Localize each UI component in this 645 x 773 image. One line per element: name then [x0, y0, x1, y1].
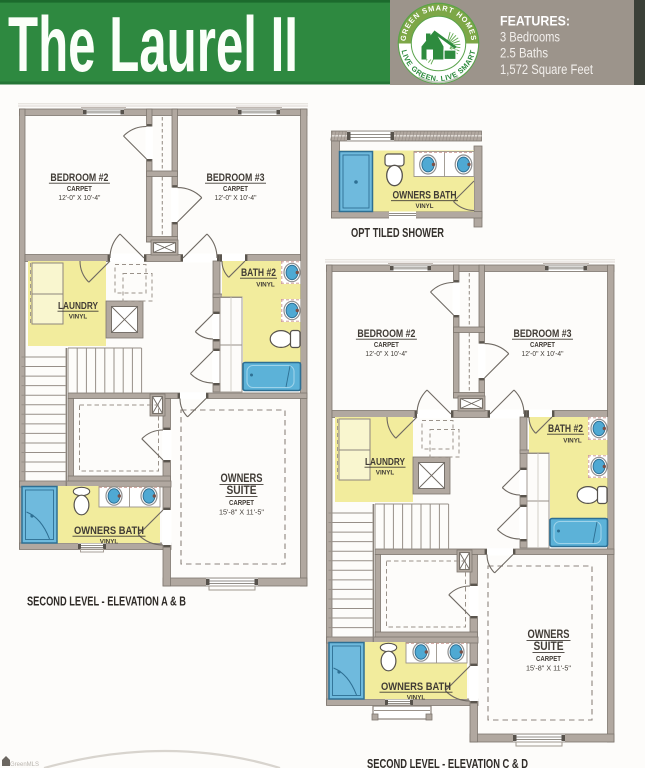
svg-text:1,572 Square Feet: 1,572 Square Feet	[500, 62, 593, 77]
svg-text:SECOND LEVEL - ELEVATION A & B: SECOND LEVEL - ELEVATION A & B	[27, 594, 186, 609]
svg-text:2.5 Baths: 2.5 Baths	[500, 46, 548, 61]
svg-text:SECOND LEVEL - ELEVATION C & D: SECOND LEVEL - ELEVATION C & D	[367, 756, 528, 768]
svg-text:OPT TILED SHOWER: OPT TILED SHOWER	[351, 226, 444, 240]
svg-text:GreenMLS: GreenMLS	[10, 762, 39, 768]
svg-text:OWNERS BATH: OWNERS BATH	[393, 190, 457, 202]
svg-text:The Laurel II: The Laurel II	[8, 2, 298, 89]
svg-text:FEATURES:: FEATURES:	[500, 13, 570, 29]
svg-text:VINYL: VINYL	[416, 203, 434, 210]
svg-text:3 Bedrooms: 3 Bedrooms	[500, 30, 560, 45]
